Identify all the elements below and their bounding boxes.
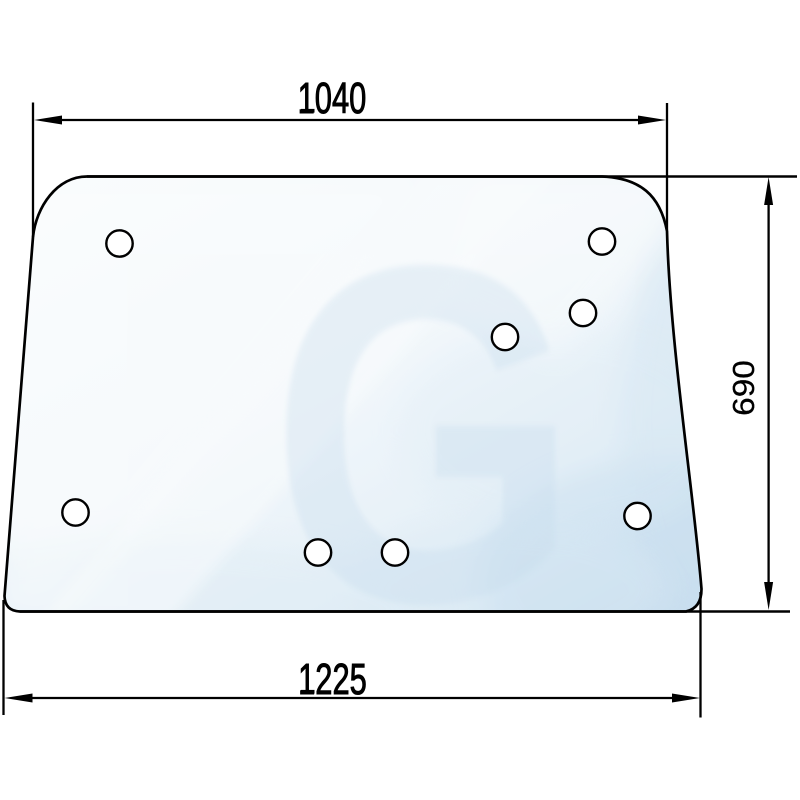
svg-text:1225: 1225 (298, 655, 367, 703)
svg-text:1040: 1040 (298, 74, 367, 122)
svg-text:690: 690 (726, 360, 761, 416)
